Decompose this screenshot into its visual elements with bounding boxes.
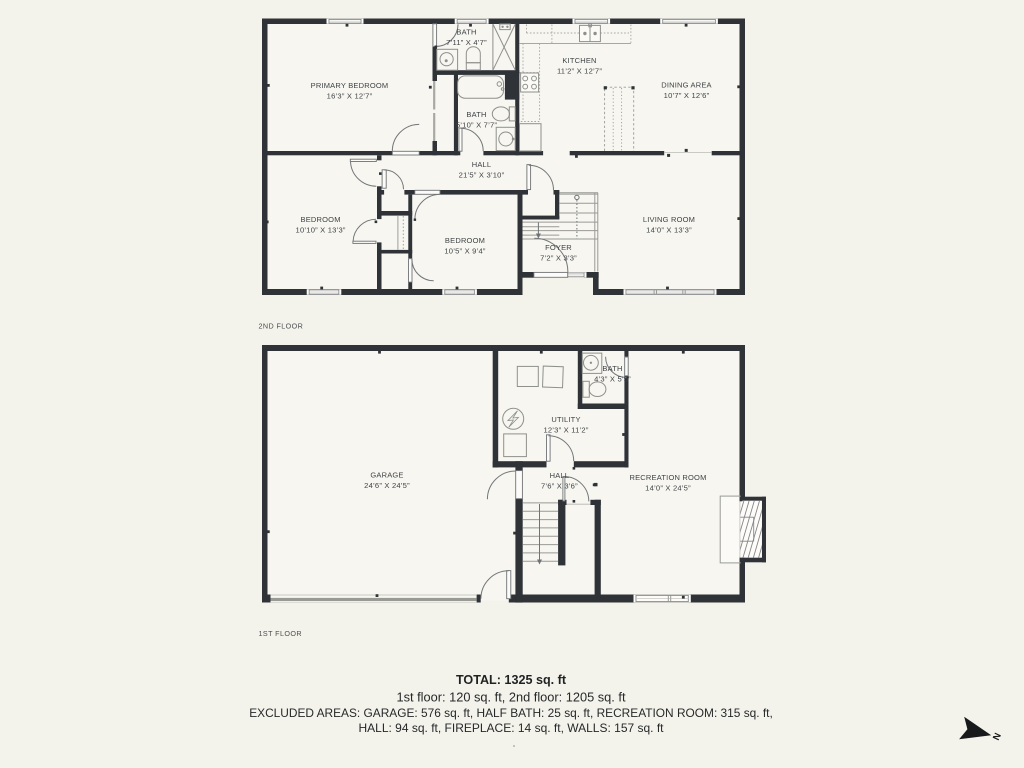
svg-text:21’5” X 3’10”: 21’5” X 3’10” (459, 170, 505, 179)
svg-text:7’2” X 3’3”: 7’2” X 3’3” (540, 253, 577, 262)
svg-text:1st floor: 120 sq. ft, 2nd flo: 1st floor: 120 sq. ft, 2nd floor: 1205 s… (396, 690, 626, 705)
svg-text:24’6” X 24’5”: 24’6” X 24’5” (364, 481, 410, 490)
svg-text:10’10” X 13’3”: 10’10” X 13’3” (296, 225, 346, 234)
svg-text:2ND FLOOR: 2ND FLOOR (259, 322, 304, 331)
svg-text:12’3” X 11’2”: 12’3” X 11’2” (543, 426, 588, 435)
svg-text:KITCHEN: KITCHEN (562, 56, 596, 65)
svg-text:11’2” X 12’7”: 11’2” X 12’7” (557, 66, 602, 75)
svg-text:BATH: BATH (602, 364, 622, 373)
svg-text:RECREATION ROOM: RECREATION ROOM (629, 473, 706, 482)
svg-text:BEDROOM: BEDROOM (445, 236, 485, 245)
svg-text:BATH: BATH (456, 27, 476, 36)
svg-text:10’7” X 12’6”: 10’7” X 12’6” (664, 91, 710, 100)
svg-text:7’6” X 3’6”: 7’6” X 3’6” (541, 482, 578, 491)
svg-text:HALL: 94 sq. ft, FIREPLACE: 14: HALL: 94 sq. ft, FIREPLACE: 14 sq. ft, W… (358, 721, 664, 735)
svg-text:FOYER: FOYER (545, 243, 572, 252)
svg-text:BATH: BATH (466, 110, 486, 119)
svg-text:GARAGE: GARAGE (370, 470, 403, 479)
svg-text:LIVING ROOM: LIVING ROOM (643, 215, 695, 224)
svg-text:PRIMARY BEDROOM: PRIMARY BEDROOM (311, 81, 389, 90)
svg-text:4’3” X 5’5”: 4’3” X 5’5” (594, 375, 631, 384)
svg-text:10’5” X 9’4”: 10’5” X 9’4” (444, 246, 486, 255)
svg-text:UTILITY: UTILITY (551, 415, 580, 424)
svg-text:N: N (990, 731, 1003, 742)
svg-text:14’0” X 24’5”: 14’0” X 24’5” (645, 483, 691, 492)
svg-text:16’3” X 12’7”: 16’3” X 12’7” (327, 91, 373, 100)
svg-text:EXCLUDED AREAS: GARAGE: 576 sq: EXCLUDED AREAS: GARAGE: 576 sq. ft, HALF… (249, 706, 773, 720)
svg-text:BEDROOM: BEDROOM (301, 215, 341, 224)
svg-text:5’10” X 7’7”: 5’10” X 7’7” (456, 120, 498, 129)
svg-text:1ST FLOOR: 1ST FLOOR (259, 629, 302, 638)
svg-text:7’11” X 4’7”: 7’11” X 4’7” (446, 38, 487, 47)
svg-text:DINING AREA: DINING AREA (661, 80, 712, 89)
svg-text:HALL: HALL (550, 471, 570, 480)
svg-text:TOTAL: 1325 sq. ft: TOTAL: 1325 sq. ft (456, 673, 567, 687)
svg-text:14’0” X 13’3”: 14’0” X 13’3” (646, 225, 692, 234)
svg-text:HALL: HALL (472, 160, 492, 169)
